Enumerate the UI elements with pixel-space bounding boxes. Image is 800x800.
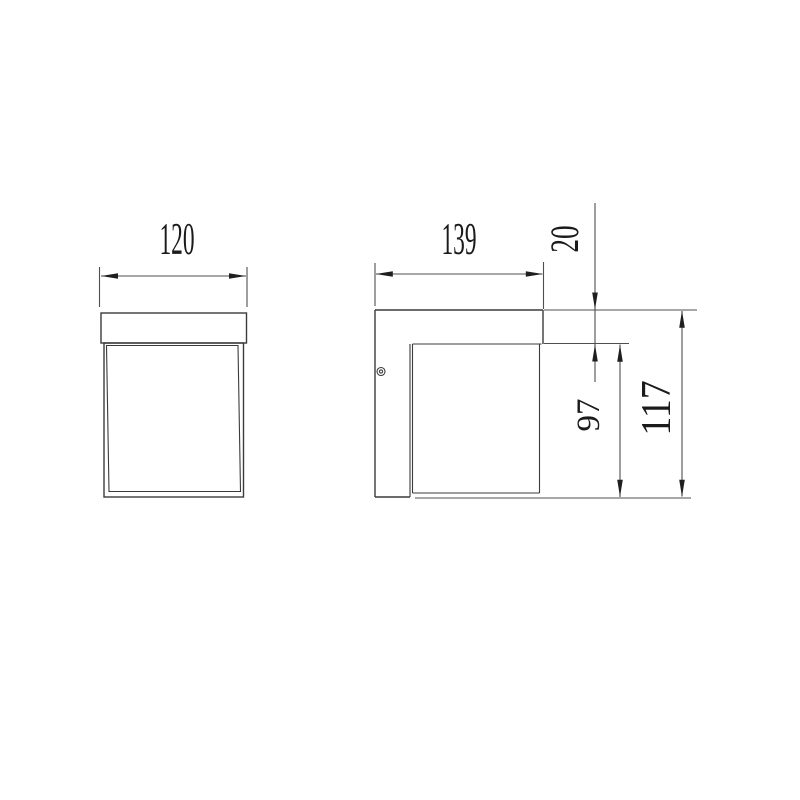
dimension-front-width	[100, 267, 248, 307]
arrowhead-left-icon	[101, 273, 118, 279]
arrowhead-up-icon	[617, 345, 623, 362]
arrowhead-right-icon	[229, 273, 246, 279]
side-view	[375, 310, 543, 497]
dimension-label-body-height: 97	[571, 399, 607, 432]
drawing-page: 120 139 20 97 117	[0, 0, 800, 800]
arrowhead-down-icon	[592, 293, 598, 310]
screw-hole-icon	[377, 368, 385, 376]
front-view	[101, 313, 247, 497]
dimension-side-width	[375, 262, 544, 309]
screw-hole-center-icon	[379, 370, 382, 373]
arrowhead-down-icon	[617, 480, 623, 497]
dimension-drawing: 120 139 20 97 117	[0, 0, 800, 800]
front-view-body-inner	[107, 346, 241, 492]
arrowhead-up-icon	[679, 311, 685, 328]
arrowhead-left-icon	[376, 271, 393, 277]
dimension-body-height	[617, 345, 623, 498]
front-view-body-outer	[104, 343, 244, 497]
dimension-label-top-inset: 20	[544, 225, 587, 252]
front-view-top-cap	[101, 313, 247, 343]
dimension-label-side-width: 139	[441, 214, 476, 264]
dimension-label-front-width: 120	[159, 214, 194, 264]
dimension-label-total-height: 117	[632, 380, 679, 435]
dimension-total-height	[679, 311, 685, 497]
dimension-top-inset	[592, 203, 598, 382]
arrowhead-up-icon	[592, 345, 598, 362]
arrowhead-down-icon	[679, 480, 685, 497]
arrowhead-right-icon	[526, 271, 543, 277]
